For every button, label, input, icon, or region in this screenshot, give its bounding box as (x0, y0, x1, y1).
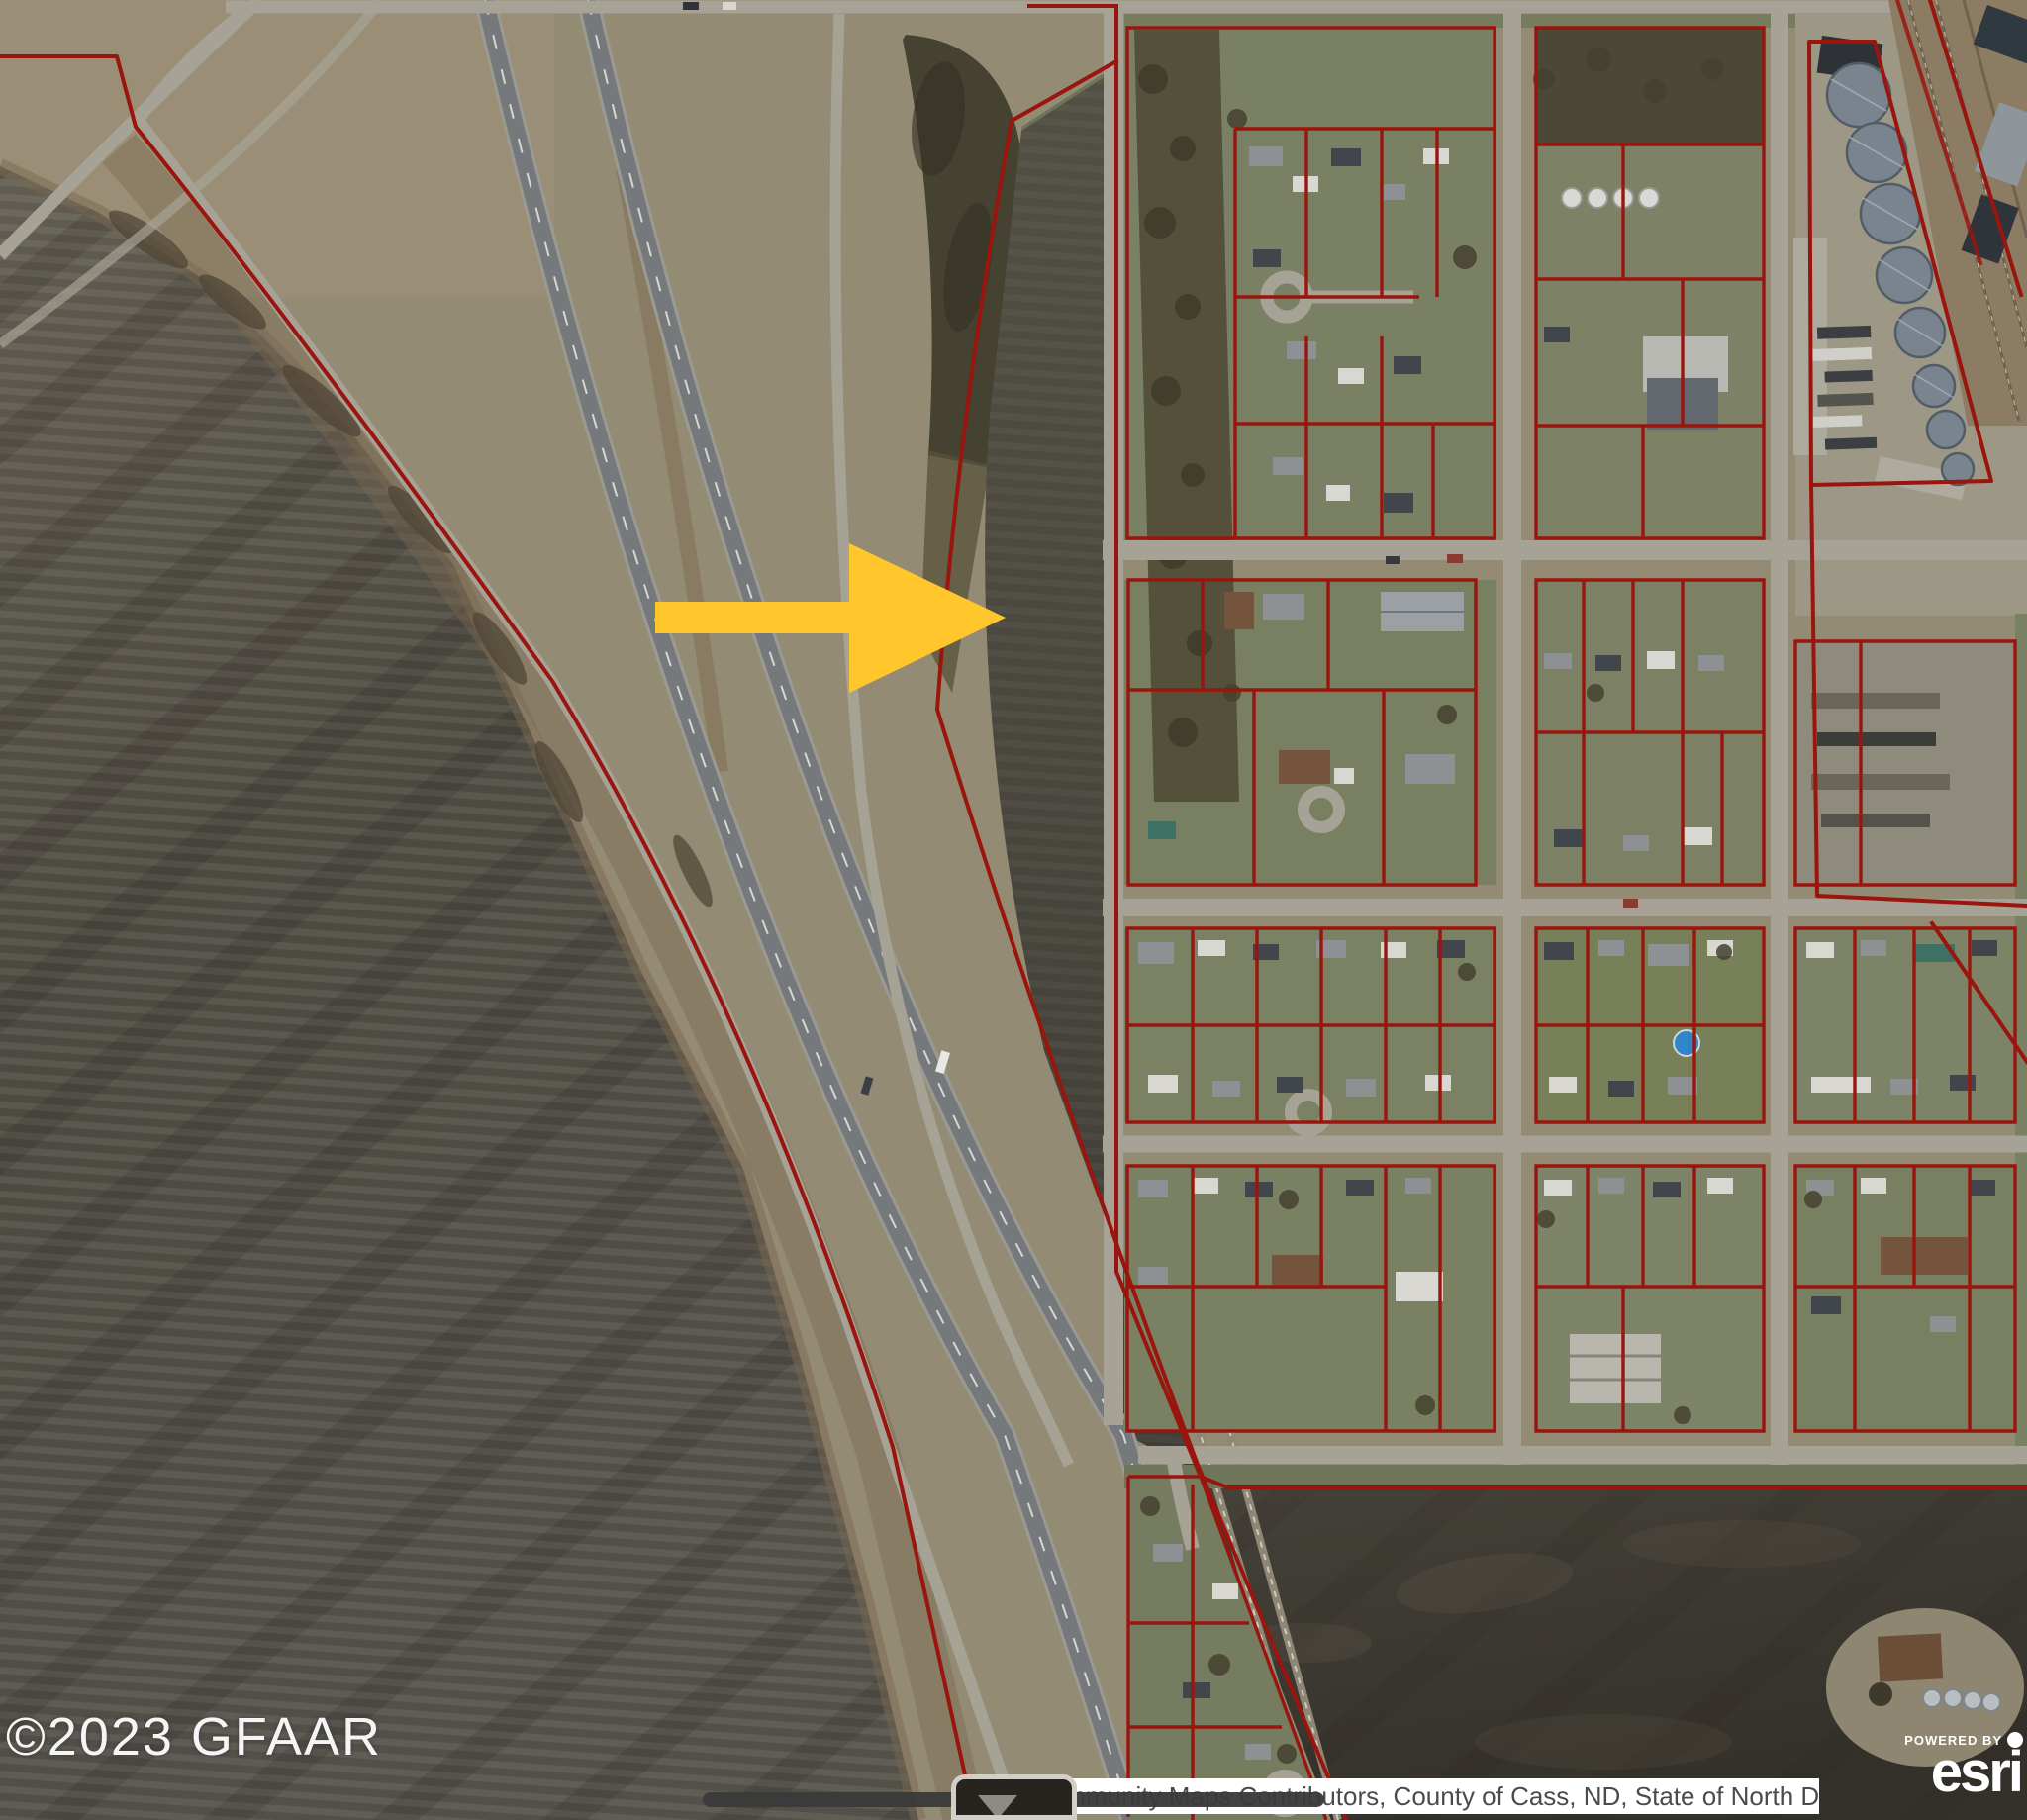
thumbnail-popup[interactable] (951, 1774, 1077, 1820)
satellite-map[interactable] (0, 0, 2027, 1820)
esri-branding: POWERED BY esri (1888, 1732, 2023, 1796)
copyright-watermark: ©2023 GFAAR (6, 1706, 382, 1768)
chevron-down-icon (978, 1795, 1017, 1819)
esri-logo: esri (1888, 1748, 2023, 1796)
listing-map-screenshot: ©2023 GFAAR Esri Community Maps Contribu… (0, 0, 2027, 1820)
